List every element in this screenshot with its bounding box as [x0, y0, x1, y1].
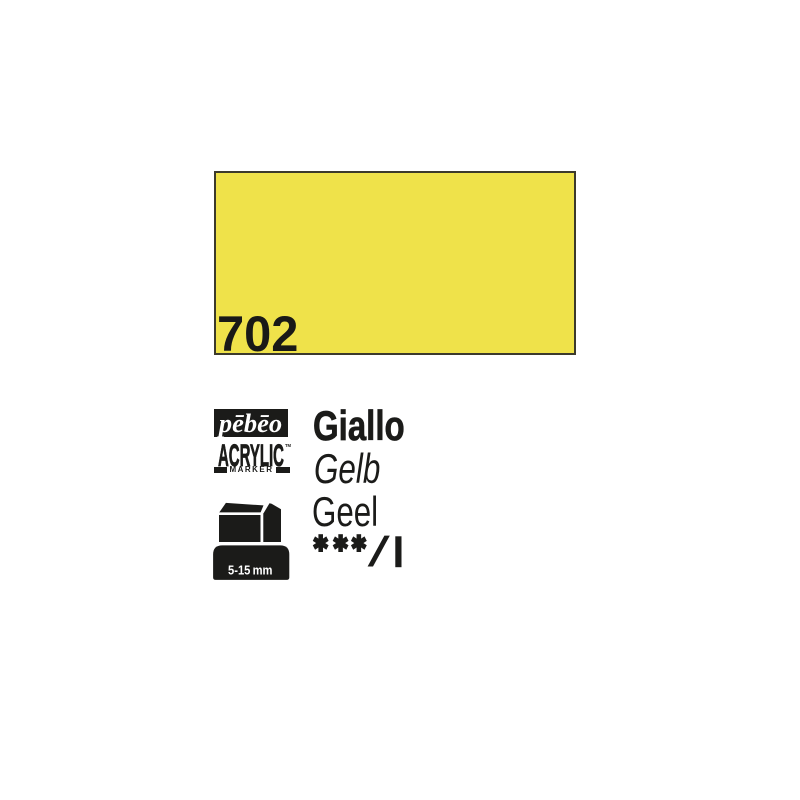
svg-text:5-15 mm: 5-15 mm: [228, 564, 273, 578]
